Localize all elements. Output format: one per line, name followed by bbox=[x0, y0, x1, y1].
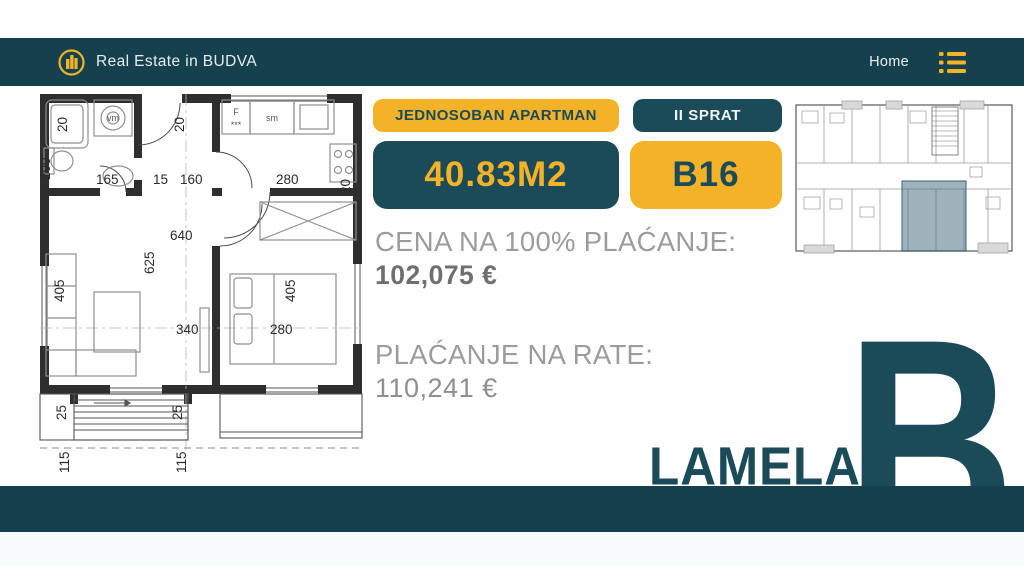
area-badge: 40.83M2 bbox=[373, 141, 619, 209]
svg-text:165: 165 bbox=[96, 172, 119, 187]
svg-text:25: 25 bbox=[54, 405, 69, 420]
brand-name: Real Estate in BUDVA bbox=[96, 53, 257, 71]
lamela-wordmark: LAMELA bbox=[649, 439, 861, 493]
svg-text:625: 625 bbox=[142, 251, 157, 274]
tv-stand bbox=[200, 308, 209, 372]
plan-windows bbox=[42, 96, 360, 392]
svg-text:20: 20 bbox=[172, 117, 187, 132]
svg-text:200: 200 bbox=[38, 157, 53, 180]
floor-badge: II SPRAT bbox=[633, 99, 782, 132]
installment-price-value: 110,241 € bbox=[375, 373, 498, 404]
brand[interactable]: Real Estate in BUDVA bbox=[58, 49, 257, 76]
stove bbox=[330, 144, 356, 182]
svg-text:280: 280 bbox=[270, 322, 293, 337]
buildings-logo-icon bbox=[58, 49, 85, 76]
svg-text:115: 115 bbox=[174, 451, 189, 473]
top-nav: Home bbox=[869, 52, 966, 73]
below-footer-strip bbox=[0, 532, 1024, 567]
svg-text:160: 160 bbox=[180, 172, 203, 187]
svg-text:15: 15 bbox=[153, 172, 168, 187]
thumb-selected-unit-highlight bbox=[902, 181, 966, 251]
plan-centerlines bbox=[40, 94, 362, 450]
svg-text:***: *** bbox=[231, 120, 242, 130]
page: Real Estate in BUDVA Home bbox=[0, 0, 1024, 567]
coffee-table bbox=[94, 292, 140, 352]
svg-text:sm: sm bbox=[266, 113, 278, 123]
building-floor-plan-thumbnail[interactable] bbox=[790, 97, 1018, 258]
apartment-floor-plan: 2020200165151602802064062540534028040525… bbox=[34, 88, 368, 478]
full-payment-price-label: CENA NA 100% PLAĆANJE: bbox=[375, 226, 736, 258]
balcony bbox=[220, 394, 362, 438]
svg-text:F: F bbox=[233, 107, 239, 117]
svg-text:115: 115 bbox=[57, 451, 72, 473]
svg-text:vm: vm bbox=[107, 113, 119, 123]
top-navigation-bar: Real Estate in BUDVA Home bbox=[0, 38, 1024, 86]
svg-text:340: 340 bbox=[176, 322, 199, 337]
svg-text:405: 405 bbox=[52, 279, 67, 302]
sofa bbox=[46, 254, 76, 376]
full-payment-price-value: 102,075 € bbox=[375, 260, 497, 291]
installment-price-label: PLAĆANJE NA RATE: bbox=[375, 339, 653, 371]
menu-list-icon[interactable] bbox=[939, 52, 966, 73]
svg-text:20: 20 bbox=[338, 179, 353, 194]
plan-fixture-labels: vmF***sm bbox=[107, 107, 278, 130]
svg-text:25: 25 bbox=[170, 405, 185, 420]
plan-dimension-labels: 2020200165151602802064062540534028040525… bbox=[38, 117, 353, 473]
apartment-type-badge: JEDNOSOBAN APARTMAN bbox=[373, 99, 619, 132]
svg-text:280: 280 bbox=[276, 172, 299, 187]
footer-bar bbox=[0, 486, 1024, 532]
nav-home-link[interactable]: Home bbox=[869, 54, 909, 70]
svg-text:405: 405 bbox=[283, 279, 298, 302]
apartment-floor-plan-drawing: 2020200165151602802064062540534028040525… bbox=[34, 88, 368, 478]
plan-terrace bbox=[40, 394, 362, 440]
unit-number-badge: B16 bbox=[630, 141, 782, 209]
plan-furniture bbox=[44, 100, 356, 376]
svg-text:640: 640 bbox=[170, 228, 193, 243]
svg-text:20: 20 bbox=[55, 117, 70, 132]
